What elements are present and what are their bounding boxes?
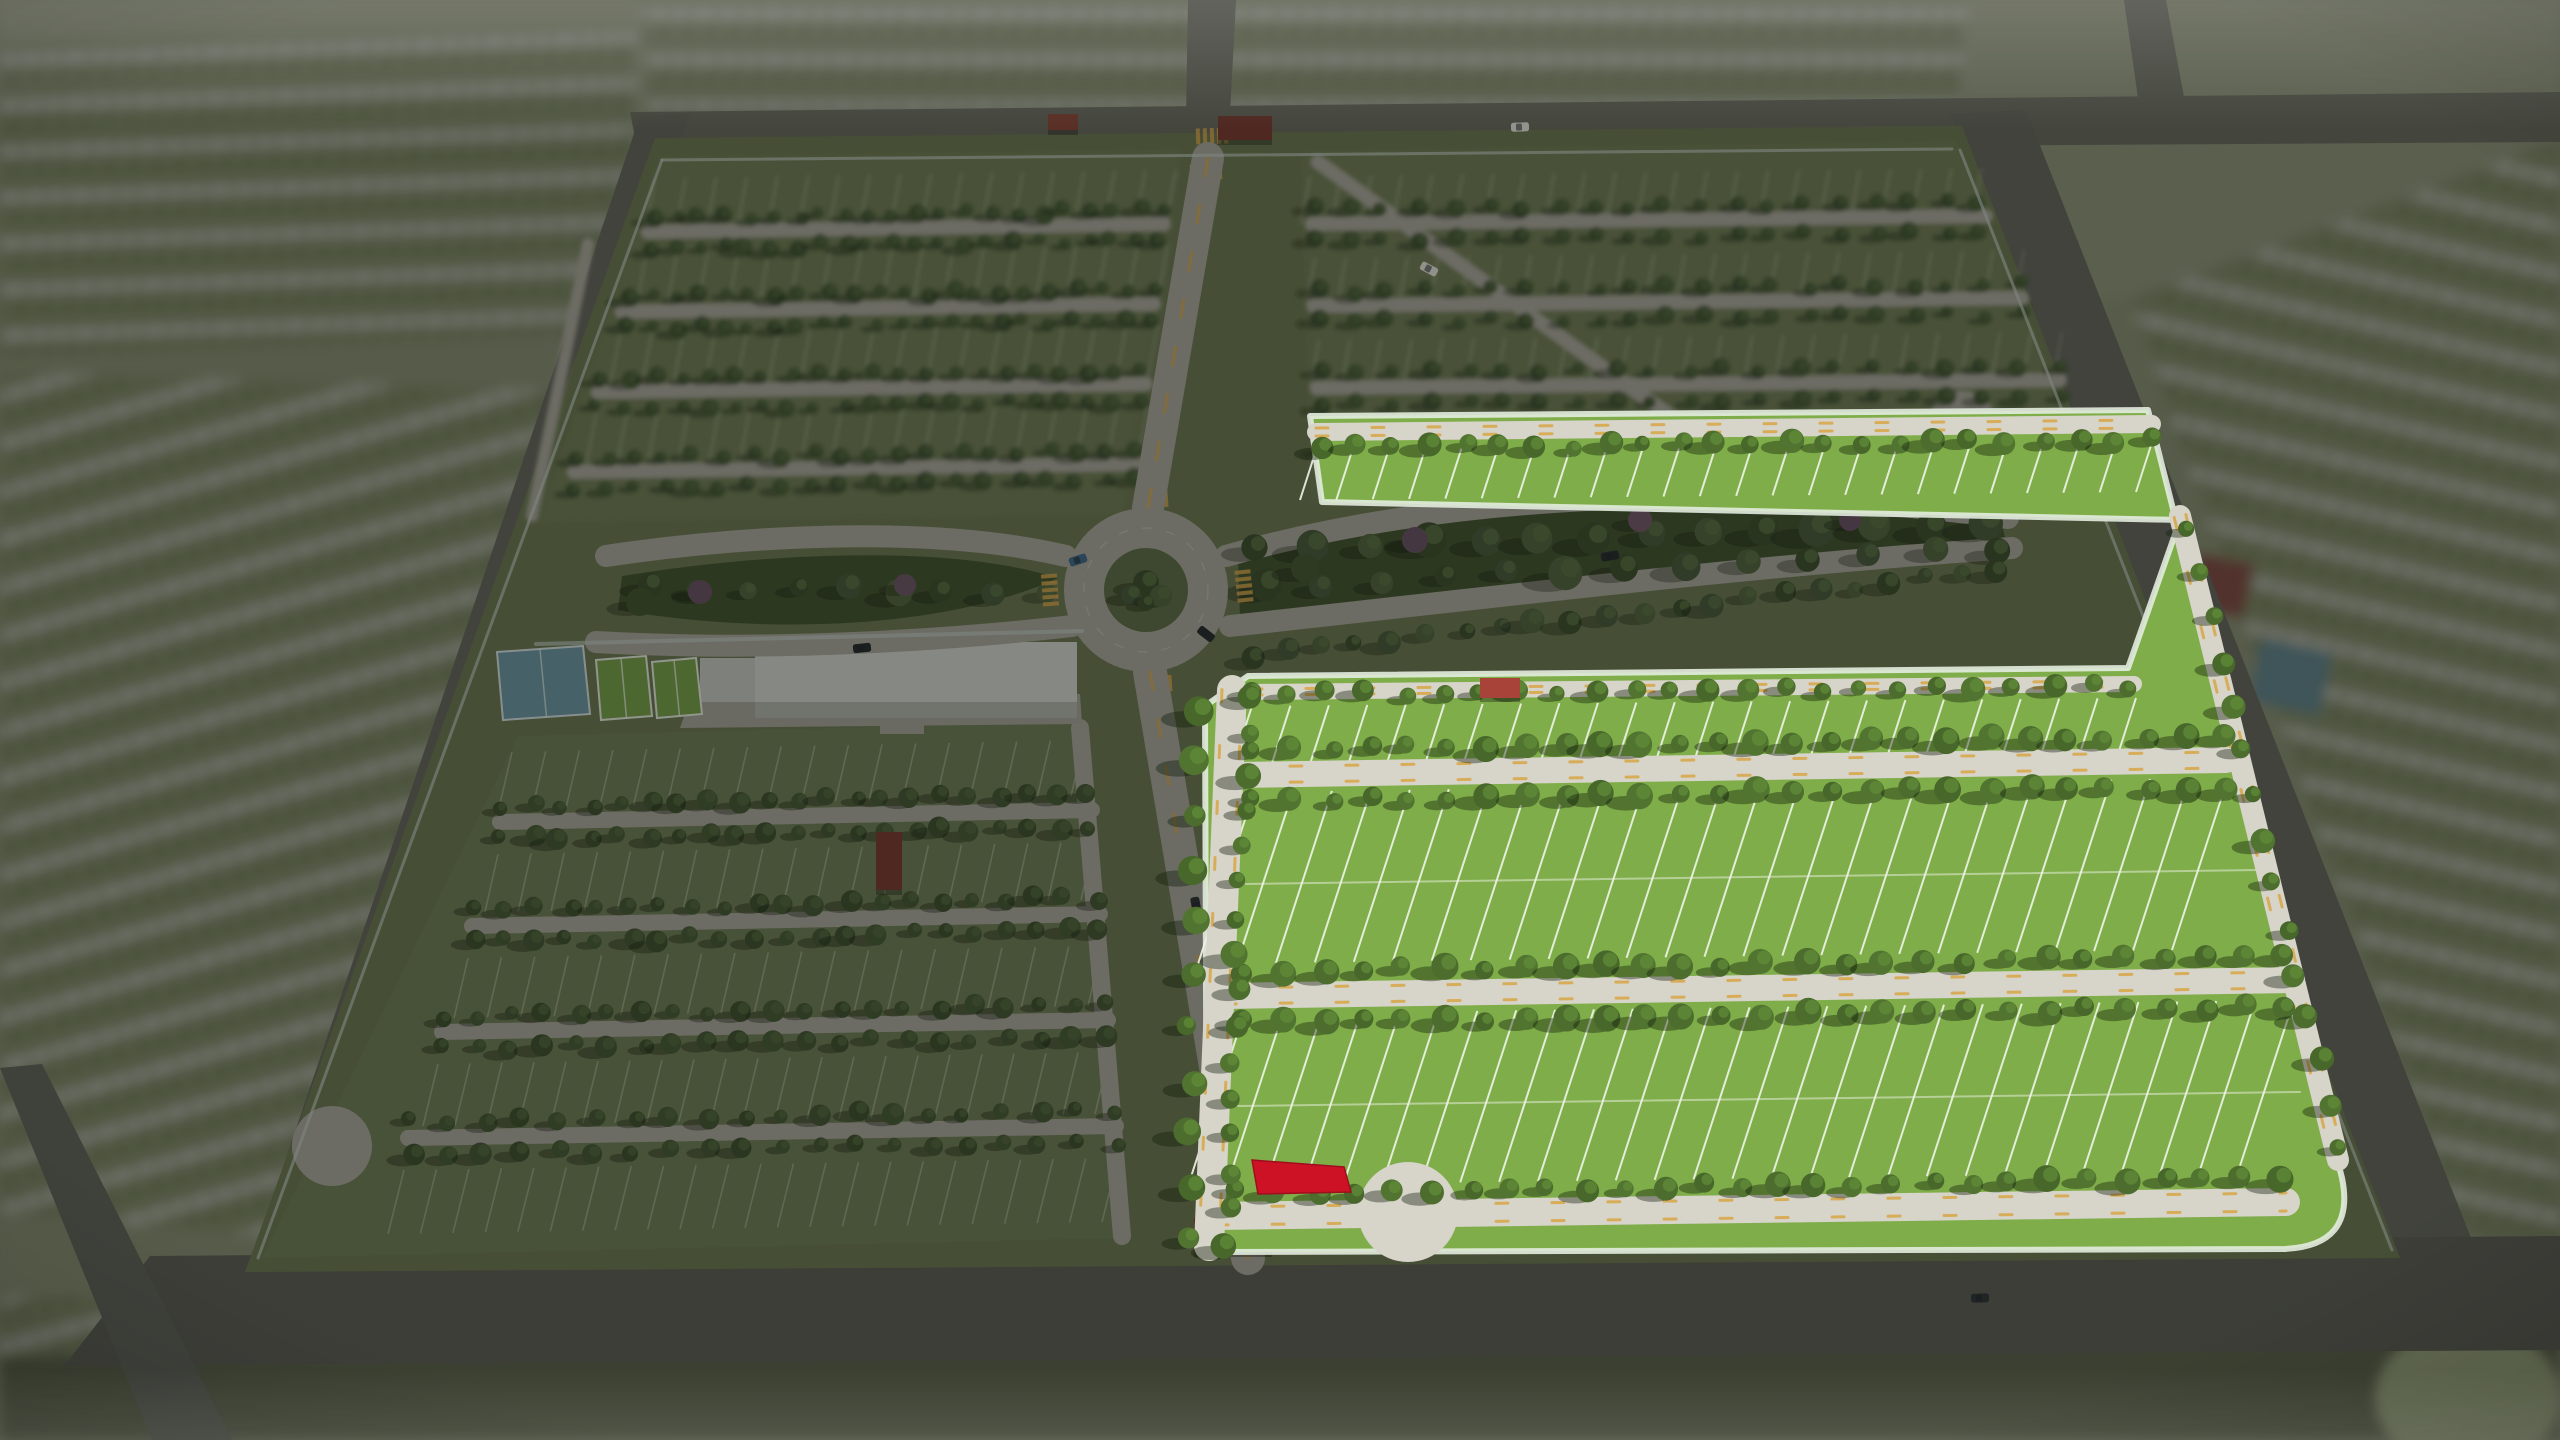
site-plan-render (0, 0, 2560, 1440)
vignette (0, 0, 2560, 1440)
haze-layer (0, 0, 2560, 1440)
master-plan-viewport (0, 0, 2560, 1440)
